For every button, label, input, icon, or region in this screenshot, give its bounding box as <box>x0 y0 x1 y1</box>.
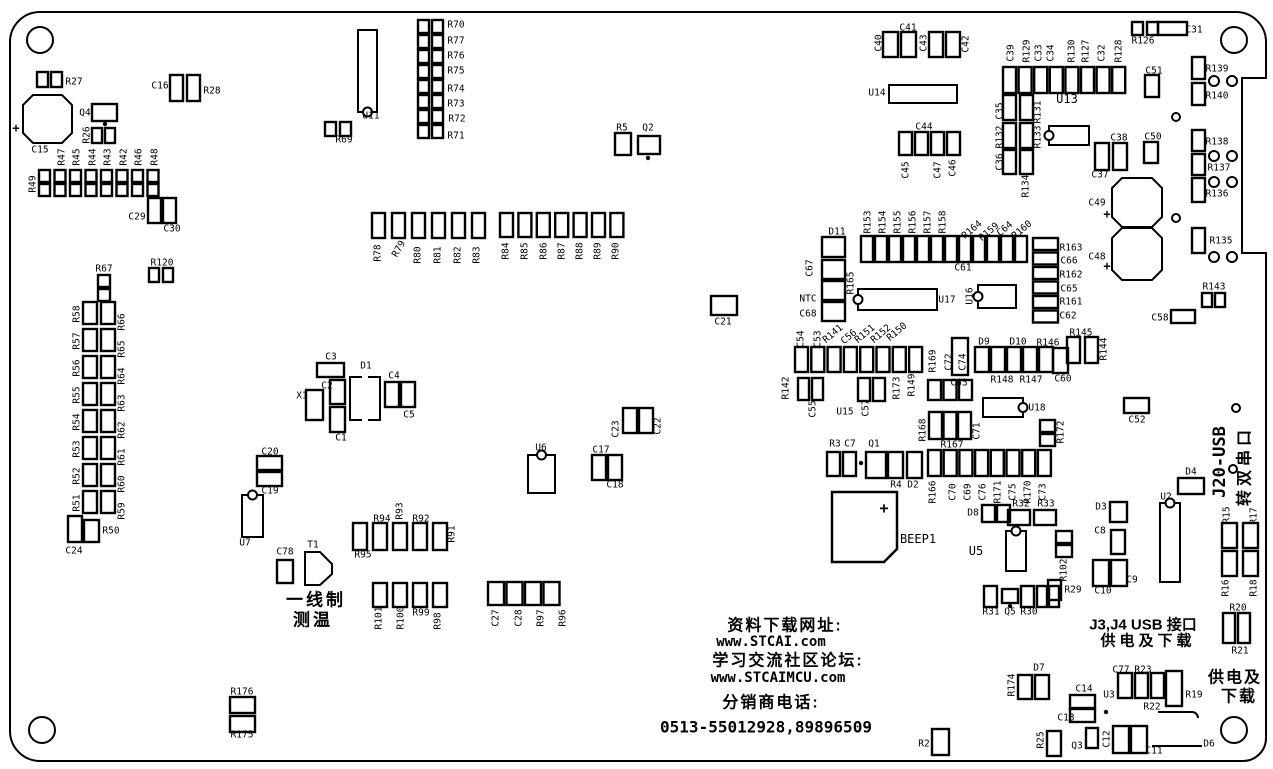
component-pad <box>844 347 857 372</box>
pcb-silkscreen-drawing: R27C15Q4R26C16R28R47R45R44R43R42R46R48R4… <box>0 0 1273 769</box>
component-label: C46 <box>948 159 959 176</box>
component-label: R5 <box>616 123 627 134</box>
component-pad <box>888 452 903 478</box>
component-pad <box>1019 67 1032 93</box>
ic-notch <box>1045 131 1054 140</box>
component-label: C33 <box>1034 44 1045 61</box>
component-label: R97 <box>536 609 547 626</box>
via-hole <box>1227 76 1237 86</box>
component-pad <box>92 104 117 121</box>
component-label: C74 <box>958 353 969 370</box>
component-pad <box>1081 67 1094 93</box>
component-label: U17 <box>938 295 955 306</box>
component-label: R161 <box>1060 297 1083 308</box>
component-label: C15 <box>31 145 48 156</box>
component-pad <box>1056 531 1072 543</box>
component-pad <box>277 560 293 583</box>
component-label: R30 <box>1020 607 1037 618</box>
component-label: R47 <box>57 148 68 165</box>
component-label: R60 <box>117 475 128 492</box>
component-pad <box>861 236 873 262</box>
component-pad <box>982 505 995 522</box>
component-pad <box>889 236 901 262</box>
component-pad <box>84 520 99 542</box>
component-label: R87 <box>557 242 568 259</box>
component-label: R19 <box>1185 690 1202 701</box>
silkscreen-path <box>1112 178 1162 227</box>
component-label: Q1 <box>868 439 880 450</box>
component-pad <box>1033 311 1058 323</box>
component-pad <box>1033 267 1058 279</box>
component-pad <box>86 170 97 182</box>
component-label: R53 <box>72 440 83 457</box>
component-pad <box>574 213 587 237</box>
component-label: R127 <box>1081 40 1092 63</box>
component-label: R76 <box>447 51 464 62</box>
component-pad <box>1033 282 1058 294</box>
component-label: R86 <box>539 242 550 259</box>
component-pad <box>101 356 115 378</box>
component-pad <box>1097 67 1110 93</box>
component-label: C8 <box>1094 526 1106 537</box>
ic-outline <box>1049 126 1089 145</box>
component-label: R83 <box>472 246 483 263</box>
component-label: C47 <box>933 161 944 178</box>
component-label: R58 <box>72 305 83 322</box>
component-label: R27 <box>65 77 82 88</box>
component-label: R43 <box>103 148 114 165</box>
component-pad <box>1033 253 1058 265</box>
component-label: R100 <box>396 606 407 629</box>
component-label: R3 <box>829 439 840 450</box>
component-label: J20-USB <box>1210 426 1230 498</box>
component-label: R80 <box>413 246 424 263</box>
component-label: C7 <box>844 439 855 450</box>
component-pad <box>638 136 660 154</box>
component-pad <box>639 408 653 433</box>
component-pad <box>257 472 282 486</box>
component-label: C70 <box>948 483 959 500</box>
component-label: R64 <box>117 367 128 384</box>
component-label: C45 <box>901 161 912 178</box>
component-label: R131 <box>1033 100 1044 123</box>
component-pad <box>877 347 890 372</box>
component-label: U5 <box>969 544 983 558</box>
component-label: D10 <box>1009 337 1026 348</box>
component-pad <box>432 65 443 78</box>
component-pad <box>827 452 840 476</box>
component-pad <box>860 347 873 372</box>
component-label: R88 <box>575 242 586 259</box>
component-pad <box>1223 613 1235 643</box>
component-pad <box>101 437 115 459</box>
component-label: R57 <box>72 332 83 349</box>
component-label: C29 <box>128 212 145 223</box>
component-pad <box>947 132 960 155</box>
component-pad <box>433 583 447 607</box>
component-pad <box>1070 695 1095 708</box>
component-label: D7 <box>1033 663 1044 674</box>
component-label: R129 <box>1022 39 1033 62</box>
component-pad <box>1050 67 1063 93</box>
via-hole <box>1209 76 1219 86</box>
component-label: C14 <box>1075 684 1092 695</box>
component-pad <box>812 378 823 400</box>
component-label: C76 <box>978 483 989 500</box>
component-label: R67 <box>95 264 112 275</box>
component-pad <box>1023 347 1037 372</box>
component-pad <box>1113 143 1127 170</box>
component-pad <box>372 213 385 238</box>
component-label: C1 <box>335 433 347 444</box>
component-label: + <box>12 121 19 135</box>
component-pad <box>187 75 200 101</box>
component-label: C50 <box>1144 132 1161 143</box>
pin1-dot <box>1104 710 1108 714</box>
component-label: R65 <box>117 340 128 357</box>
component-label: R20 <box>1229 603 1246 614</box>
component-pad <box>432 20 443 33</box>
component-pad <box>500 213 513 237</box>
component-pad <box>132 184 143 196</box>
component-pad <box>1034 67 1047 93</box>
component-pad <box>929 412 942 439</box>
component-pad <box>385 382 399 407</box>
component-pad <box>958 412 971 439</box>
component-label: R46 <box>134 148 145 165</box>
component-pad <box>230 697 255 713</box>
component-label: C43 <box>919 34 930 51</box>
component-pad <box>883 32 898 57</box>
component-label: R54 <box>72 413 83 430</box>
component-label: R160 <box>1010 218 1035 241</box>
component-label: C12 <box>1102 730 1113 747</box>
component-label: R95 <box>354 550 371 561</box>
component-label: D2 <box>907 480 918 491</box>
component-label: R99 <box>412 608 429 619</box>
component-label: C13 <box>1057 713 1074 724</box>
component-label: 分销商电话: <box>722 693 819 712</box>
component-pad <box>306 390 323 420</box>
component-pad <box>148 170 159 182</box>
via-hole <box>1209 177 1219 187</box>
component-pad <box>401 382 415 407</box>
component-pad <box>1085 337 1098 363</box>
component-label: C16 <box>151 81 168 92</box>
silkscreen-path <box>305 552 332 585</box>
component-label: U3 <box>1103 690 1114 701</box>
component-pad <box>101 302 115 324</box>
component-pad <box>909 347 922 372</box>
component-pad <box>413 523 427 550</box>
component-pad <box>432 50 443 63</box>
component-label: R143 <box>1203 282 1226 293</box>
component-label: D4 <box>1185 467 1197 478</box>
component-label: R25 <box>1036 731 1047 748</box>
component-label: Q4 <box>79 108 91 119</box>
component-pad <box>132 170 143 182</box>
component-pad <box>373 523 387 550</box>
component-label: C41 <box>899 23 916 34</box>
component-label: C3 <box>325 352 336 363</box>
component-label: C42 <box>961 35 972 52</box>
component-pad <box>83 329 97 351</box>
component-pad <box>822 260 845 279</box>
component-pad <box>330 407 345 432</box>
component-pad <box>931 132 944 155</box>
component-pad <box>991 347 1005 372</box>
component-label: R56 <box>72 359 83 376</box>
component-label: R163 <box>1060 243 1083 254</box>
component-label: R139 <box>1206 64 1229 75</box>
component-pad <box>418 125 429 138</box>
component-pad <box>101 170 112 182</box>
component-pad <box>432 35 443 48</box>
component-pad <box>875 236 887 262</box>
component-label: C2 <box>321 381 332 392</box>
component-label: R50 <box>102 526 119 537</box>
mounting-hole <box>1221 27 1247 53</box>
component-pad <box>1192 130 1205 151</box>
component-label: R59 <box>117 502 128 519</box>
component-label: R120 <box>151 258 174 269</box>
component-label: C57 <box>861 399 872 416</box>
component-label: C66 <box>1060 256 1077 267</box>
component-label: R101 <box>374 606 385 629</box>
component-label: R145 <box>1070 328 1093 339</box>
component-pad <box>946 32 960 57</box>
component-label: J3,J4 USB 接口 <box>1089 616 1197 634</box>
component-pad <box>83 437 97 459</box>
component-label: R62 <box>117 421 128 438</box>
component-label: R49 <box>28 175 39 192</box>
component-label: R138 <box>1206 137 1229 148</box>
component-pad <box>105 128 115 143</box>
component-pad <box>1034 510 1056 525</box>
component-pad <box>592 213 605 237</box>
component-pad <box>544 582 560 605</box>
component-pad <box>1001 236 1013 262</box>
component-label: R126 <box>1132 36 1155 47</box>
component-label: D1 <box>360 361 372 372</box>
component-label: R90 <box>611 242 622 259</box>
component-pad <box>975 450 988 476</box>
component-label: R156 <box>908 210 919 233</box>
component-label: D11 <box>828 227 845 238</box>
pin1-dot <box>646 156 650 160</box>
component-pad <box>1008 510 1030 525</box>
component-label: R158 <box>938 210 949 233</box>
component-pad <box>1033 238 1058 250</box>
component-pad <box>711 296 737 315</box>
component-label: R132 <box>995 126 1006 149</box>
component-label: R96 <box>558 609 569 626</box>
component-label: C62 <box>1059 311 1076 322</box>
component-pad <box>488 582 504 605</box>
component-label: R169 <box>928 349 939 372</box>
component-label: C77 <box>1112 665 1129 676</box>
component-label: C61 <box>954 263 971 274</box>
component-label: U16 <box>965 287 976 304</box>
ic-notch <box>854 295 863 304</box>
component-pad <box>55 170 66 182</box>
component-label: R146 <box>1037 338 1060 349</box>
component-label: C44 <box>915 122 932 133</box>
component-label: C51 <box>1145 66 1162 77</box>
component-label: C72 <box>944 353 955 370</box>
component-pad <box>1038 450 1051 476</box>
component-pad <box>1002 589 1018 603</box>
component-label: R71 <box>447 131 464 142</box>
component-label: C30 <box>163 224 180 235</box>
component-label: R23 <box>1134 665 1151 676</box>
component-pad <box>1110 502 1127 522</box>
component-pad <box>1192 178 1205 202</box>
component-label: X1 <box>296 391 308 402</box>
component-label: R44 <box>88 148 99 165</box>
component-label: 转双串口 <box>1235 426 1254 506</box>
component-label: R77 <box>447 36 464 47</box>
component-pad <box>828 347 841 372</box>
ic-notch <box>1012 527 1021 536</box>
component-label: R166 <box>928 480 939 503</box>
component-pad <box>1007 347 1021 372</box>
component-pad <box>1095 143 1109 170</box>
component-pad <box>917 236 929 262</box>
component-label: + <box>879 499 888 517</box>
component-pad <box>51 72 62 87</box>
component-pad <box>325 122 336 136</box>
component-pad <box>418 110 429 123</box>
component-pad <box>507 582 523 605</box>
component-pad <box>1192 154 1205 175</box>
component-label: U18 <box>1028 403 1045 414</box>
component-label: C9 <box>1126 575 1138 586</box>
component-label: R144 <box>1099 337 1110 360</box>
component-pad <box>1171 310 1195 323</box>
component-pad <box>101 383 115 405</box>
component-pad <box>932 729 949 755</box>
component-pad <box>822 237 845 257</box>
via-hole <box>1227 177 1237 187</box>
component-label: 资料下载网址: <box>727 616 842 635</box>
component-pad <box>1022 450 1035 476</box>
component-pad <box>101 329 115 351</box>
component-pad <box>418 95 429 108</box>
ic-notch <box>1019 403 1028 412</box>
component-pad <box>393 583 407 607</box>
component-label: R176 <box>231 687 254 698</box>
component-pad <box>39 170 50 182</box>
component-pad <box>991 450 1004 476</box>
component-pad <box>610 213 623 237</box>
component-label: R133 <box>1033 126 1044 149</box>
component-label: R82 <box>453 246 464 263</box>
component-pad <box>432 80 443 93</box>
component-pad <box>101 464 115 486</box>
component-pad <box>1093 560 1109 586</box>
component-pad <box>1243 523 1258 548</box>
component-pad <box>83 491 97 513</box>
component-label: 下载 <box>1221 688 1257 706</box>
silkscreen-path <box>1152 712 1202 746</box>
component-pad <box>418 80 429 93</box>
component-pad <box>518 213 531 237</box>
component-label: C35 <box>995 102 1006 119</box>
component-pad <box>945 236 957 262</box>
component-pad <box>901 32 916 57</box>
component-pad <box>795 347 808 372</box>
component-label: C4 <box>388 371 400 382</box>
component-label: R150 <box>885 320 910 343</box>
silkscreen-path <box>350 377 380 420</box>
component-pad <box>944 450 957 476</box>
component-pad <box>413 583 427 607</box>
component-label: R81 <box>433 246 444 263</box>
component-label: Q5 <box>1004 607 1015 618</box>
component-label: C22 <box>653 417 664 434</box>
component-pad <box>944 412 957 439</box>
component-label: R167 <box>941 440 964 451</box>
component-pad <box>1145 75 1159 97</box>
component-label: R175 <box>231 730 254 741</box>
component-pad <box>1049 586 1059 607</box>
component-pad <box>1151 673 1164 698</box>
component-label: 学习交流社区论坛: <box>712 651 863 670</box>
via-hole <box>1227 151 1237 161</box>
component-pad <box>915 132 928 155</box>
component-pad <box>1086 728 1098 748</box>
component-label: R174 <box>1007 673 1018 696</box>
component-pad <box>592 455 606 480</box>
component-label: R75 <box>447 66 464 77</box>
component-label: C78 <box>276 547 293 558</box>
component-label: R140 <box>1206 91 1229 102</box>
ic-outline <box>1160 503 1180 582</box>
component-pad <box>1144 142 1158 163</box>
component-label: R89 <box>593 242 604 259</box>
component-label: Q2 <box>642 123 653 134</box>
ic-outline <box>528 455 555 493</box>
component-label: R91 <box>447 525 458 542</box>
component-label: C68 <box>799 309 816 320</box>
component-label: R72 <box>448 114 465 125</box>
component-pad <box>1202 293 1212 307</box>
component-pad <box>83 410 97 432</box>
component-pad <box>987 236 999 262</box>
pin1-dot <box>103 122 107 126</box>
component-label: 一线制 <box>286 590 346 610</box>
component-pad <box>959 450 972 476</box>
component-label: R157 <box>923 211 934 234</box>
component-label: C58 <box>1151 313 1168 324</box>
board-outline <box>10 12 1266 761</box>
component-pad <box>525 582 541 605</box>
component-label: C52 <box>1128 415 1145 426</box>
component-label: C28 <box>514 609 525 626</box>
ic-outline <box>858 289 937 310</box>
component-pad <box>1178 478 1204 494</box>
component-label: 0513-55012928,89896509 <box>660 718 872 737</box>
component-label: R171 <box>993 480 1004 503</box>
component-pad <box>1018 675 1032 699</box>
component-label: R29 <box>1064 585 1081 596</box>
component-label: U14 <box>868 88 885 99</box>
mounting-hole <box>1221 717 1247 743</box>
component-label: R18 <box>1249 579 1260 596</box>
component-pad <box>1113 726 1129 753</box>
component-label: R85 <box>520 242 531 259</box>
